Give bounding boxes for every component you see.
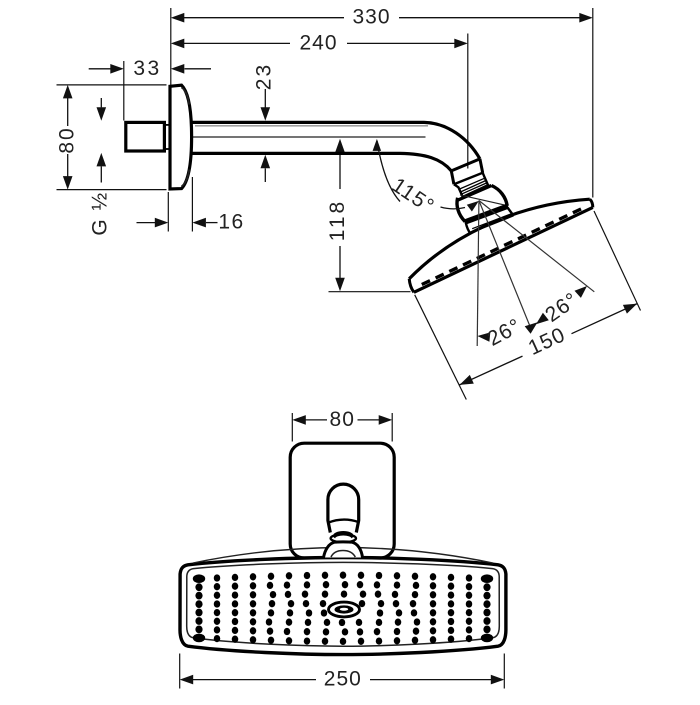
svg-text:118: 118 bbox=[326, 199, 349, 241]
svg-text:16: 16 bbox=[218, 211, 244, 234]
svg-text:240: 240 bbox=[299, 31, 337, 54]
svg-text:33: 33 bbox=[133, 57, 161, 80]
svg-text:80: 80 bbox=[330, 408, 355, 431]
svg-text:23: 23 bbox=[253, 63, 276, 90]
svg-text:80: 80 bbox=[56, 126, 79, 153]
svg-text:250: 250 bbox=[324, 668, 362, 691]
svg-text:330: 330 bbox=[352, 6, 390, 29]
svg-text:G ½: G ½ bbox=[89, 191, 112, 235]
